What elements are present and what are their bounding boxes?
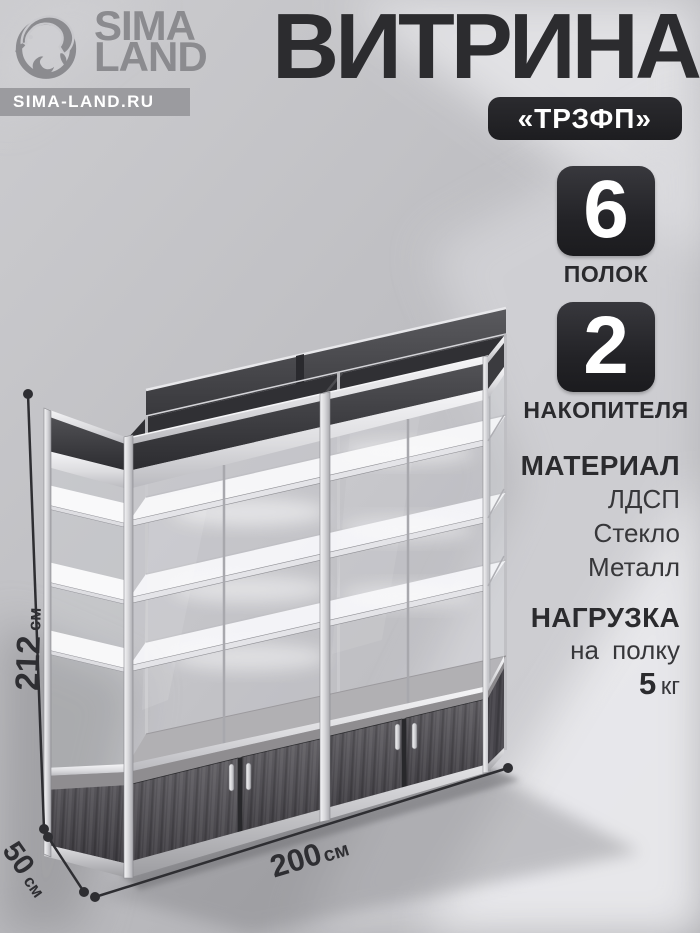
door-handle — [395, 724, 400, 750]
stats-column: 6 ПОЛОК 2 НАКОПИТЕЛЯ — [518, 166, 694, 438]
door-handle — [229, 764, 234, 791]
load-heading: НАГРУЗКА — [462, 602, 680, 634]
door-handle — [246, 763, 251, 790]
height-value: 212 — [8, 635, 47, 691]
material-item: Металл — [462, 550, 680, 584]
specs-column: МАТЕРИАЛ ЛДСП Стекло Металл НАГРУЗКА на … — [462, 450, 680, 701]
material-item: ЛДСП — [462, 482, 680, 516]
material-item: Стекло — [462, 516, 680, 550]
material-heading: МАТЕРИАЛ — [462, 450, 680, 482]
brand-logo-text: SIMA LAND — [94, 10, 207, 72]
height-unit: см — [24, 607, 45, 631]
model-badge: «ТРЗФП» — [488, 97, 682, 140]
load-unit: кг — [661, 673, 680, 700]
height-dimension-label: 212см — [8, 607, 49, 692]
brand-word-2: LAND — [94, 41, 207, 72]
site-url-bar: SIMA-LAND.RU — [0, 88, 190, 116]
door-handle — [412, 723, 417, 749]
load-condition: на полку — [462, 634, 680, 667]
left-chamfer-face — [44, 408, 128, 878]
product-card: SIMA LAND SIMA-LAND.RU ВИТРИНА «ТРЗФП» 6… — [0, 0, 700, 933]
shelves-count-badge: 6 — [557, 166, 655, 256]
shelves-count-label: ПОЛОК — [564, 261, 648, 288]
dolphin-wave-ring-icon — [10, 8, 82, 84]
load-value: 5 — [639, 666, 656, 701]
storages-count-badge: 2 — [557, 302, 655, 392]
page-title: ВИТРИНА — [272, 0, 698, 93]
storages-count-label: НАКОПИТЕЛЯ — [523, 397, 688, 424]
